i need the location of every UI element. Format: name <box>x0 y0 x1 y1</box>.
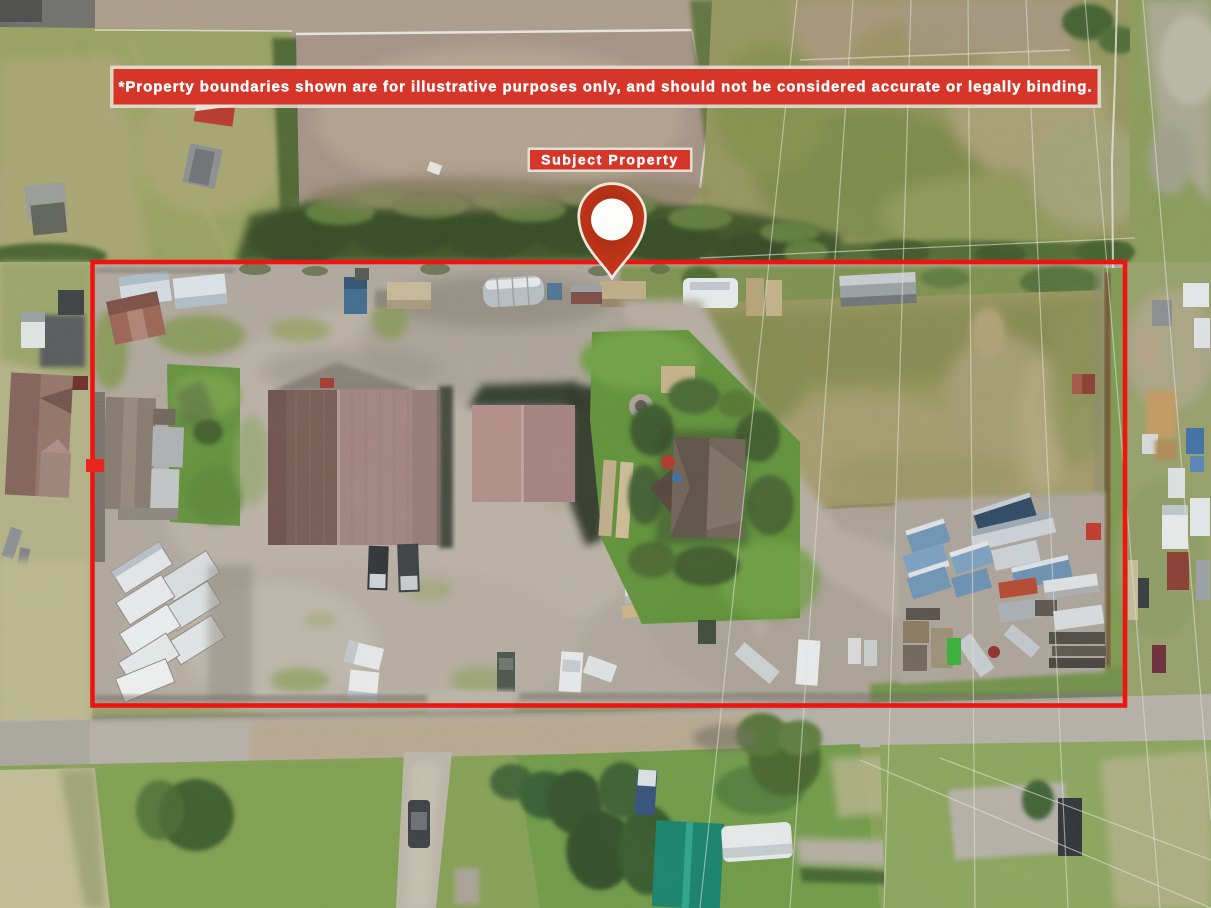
svg-text:*Property boundaries shown are: *Property boundaries shown are for illus… <box>119 79 1093 96</box>
svg-text:Subject Property: Subject Property <box>541 152 679 168</box>
